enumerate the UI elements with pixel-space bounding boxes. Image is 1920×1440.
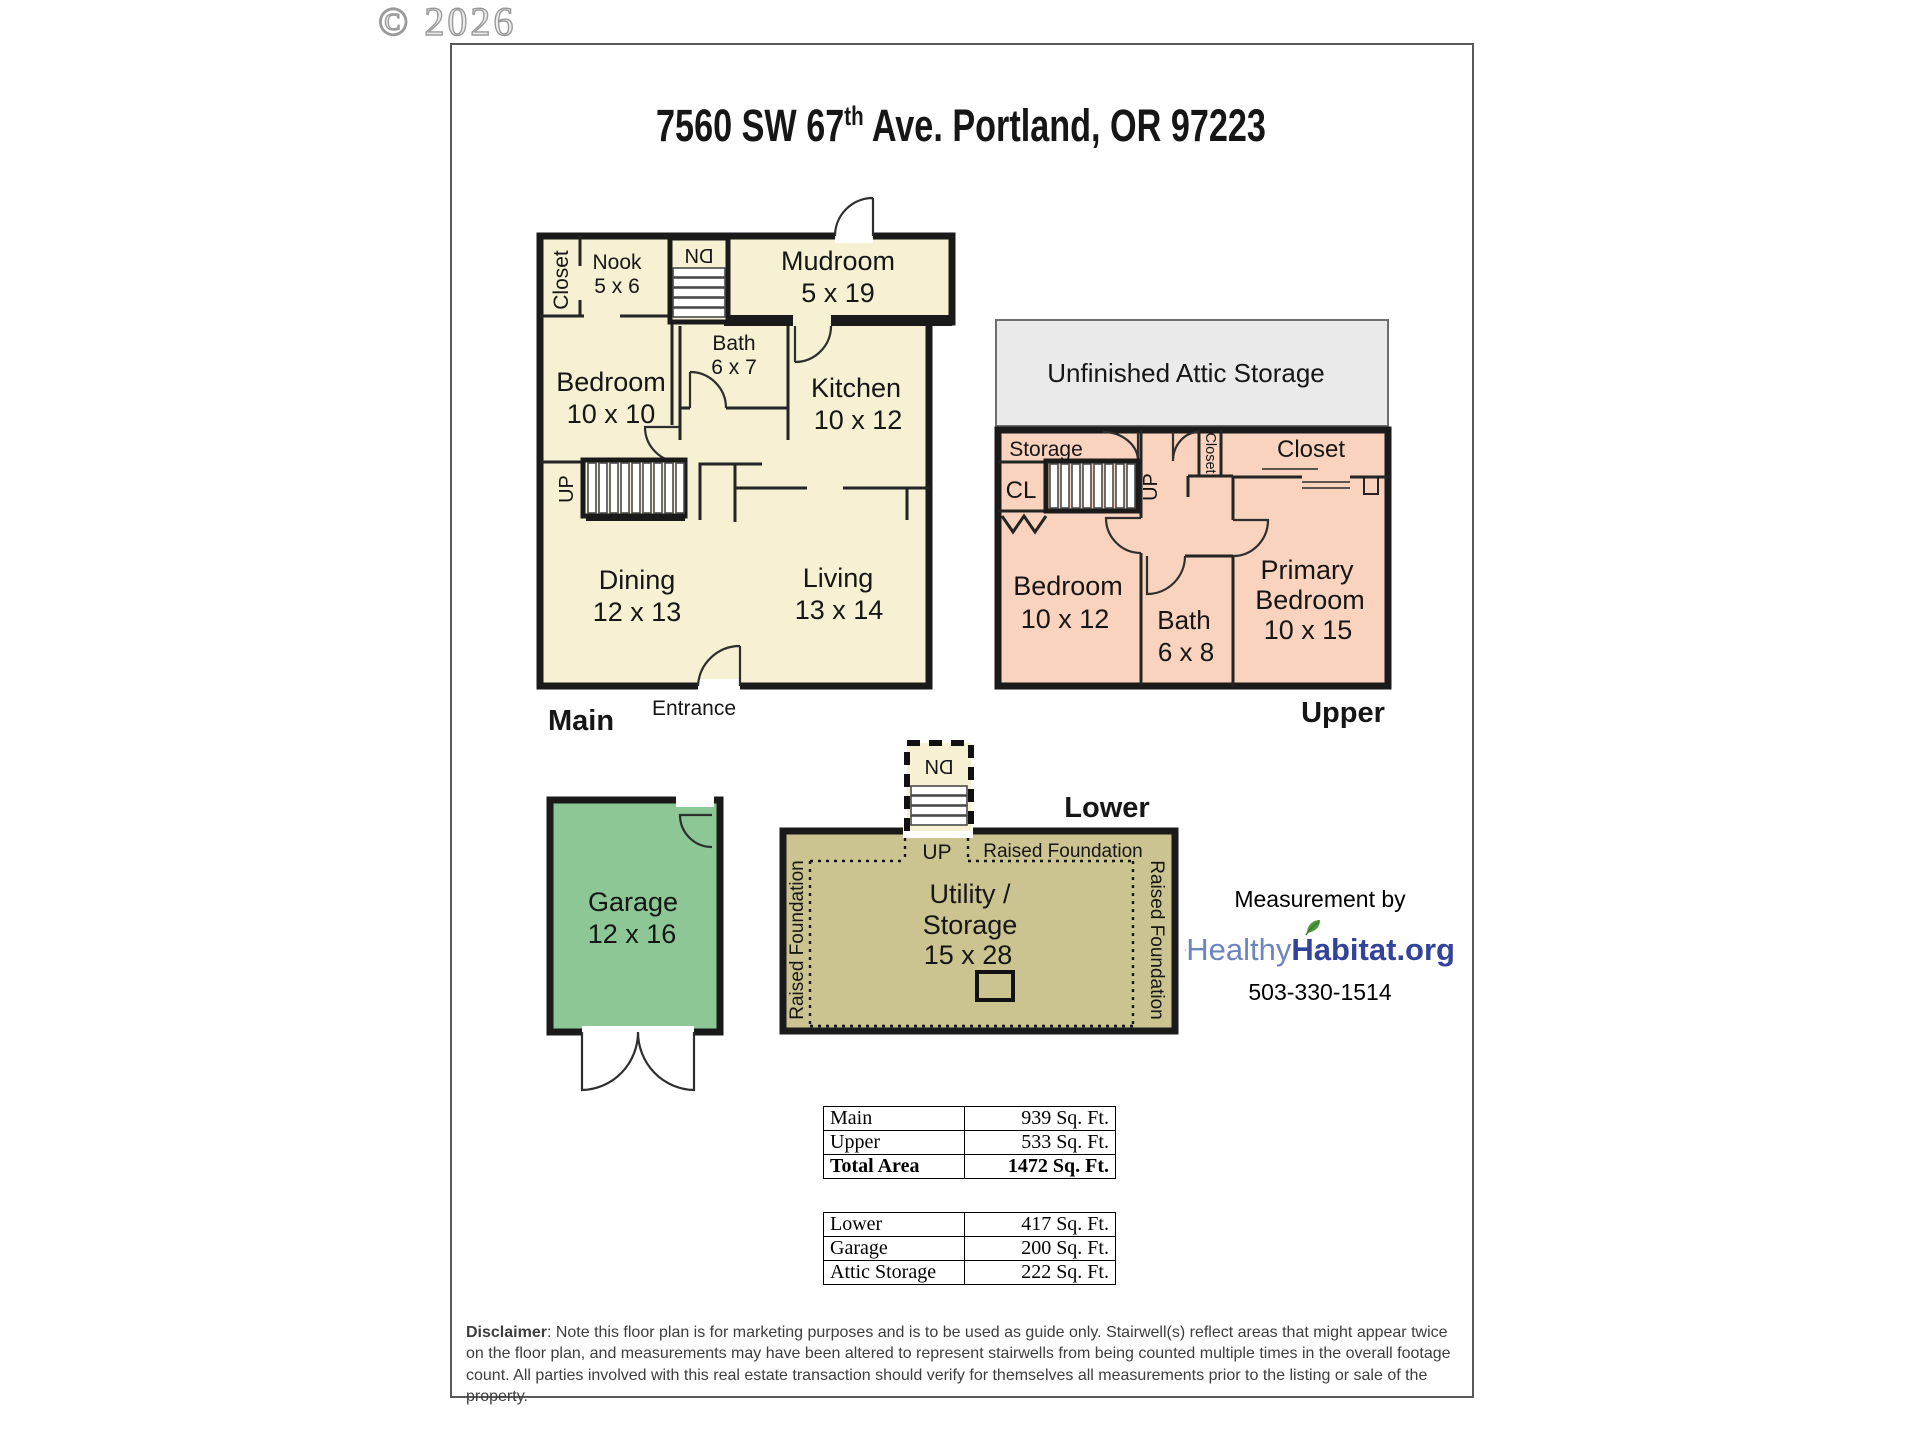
room-label-nook: Nook <box>592 251 642 274</box>
stair-label-main-up: UP <box>556 475 578 503</box>
logo-tld: .org <box>1396 932 1455 967</box>
room-dims-garage: 12 x 16 <box>588 919 677 949</box>
area-row-label: Lower <box>824 1213 965 1237</box>
mudroom-bottom-wall <box>724 315 952 326</box>
table-row: Lower 417 Sq. Ft. <box>824 1213 1116 1237</box>
stair-label-main-dn: DN <box>685 244 714 266</box>
logo-text: HealthyHabitat.org <box>1186 932 1455 968</box>
room-label-utility-line1: Utility / <box>930 879 1011 909</box>
kitchen-door-opening <box>793 313 831 328</box>
attic-storage-label: Unfinished Attic Storage <box>1047 358 1325 388</box>
room-label-cl: CL <box>1006 477 1037 504</box>
area-row-value: 939 Sq. Ft. <box>965 1107 1116 1131</box>
room-label-garage: Garage <box>588 887 678 917</box>
room-label-living: Living <box>803 563 874 593</box>
main-top-door-opening <box>835 229 873 243</box>
room-label-upper-bedroom: Bedroom <box>1013 571 1123 601</box>
upper-floor-plan: Unfinished Attic Storage Storage CL UP <box>996 320 1390 729</box>
room-label-dining: Dining <box>599 565 676 595</box>
stair-label-upper-up: UP <box>1140 473 1162 501</box>
disclaimer: Disclaimer: Note this floor plan is for … <box>466 1322 1468 1407</box>
room-dims-living: 13 x 14 <box>795 595 884 625</box>
upper-up-staircase <box>1046 461 1138 511</box>
floor-label-main: Main <box>548 705 614 737</box>
room-label-upper-closet: Closet <box>1277 436 1345 463</box>
room-dims-upper-bath: 6 x 8 <box>1158 637 1214 667</box>
room-label-main-bedroom: Bedroom <box>556 367 666 397</box>
room-dims-primary: 10 x 15 <box>1264 615 1353 645</box>
area-row-value: 222 Sq. Ft. <box>965 1261 1116 1285</box>
room-label-primary-line2: Bedroom <box>1255 585 1365 615</box>
floor-label-upper: Upper <box>1301 697 1385 729</box>
area-row-label: Attic Storage <box>824 1261 965 1285</box>
room-dims-dining: 12 x 13 <box>593 597 682 627</box>
table-row: Garage 200 Sq. Ft. <box>824 1237 1116 1261</box>
table-row-total: Total Area 1472 Sq. Ft. <box>824 1155 1116 1179</box>
room-dims-kitchen: 10 x 12 <box>814 405 903 435</box>
stair-label-lower-up: UP <box>922 841 951 864</box>
raised-foundation-label-left: Raised Foundation <box>787 860 808 1020</box>
table-row: Upper 533 Sq. Ft. <box>824 1131 1116 1155</box>
area-row-value: 417 Sq. Ft. <box>965 1213 1116 1237</box>
lower-floor-plan: DN Lower UP Raised Foundation Raised Fou… <box>783 743 1175 1031</box>
lower-dn-staircase <box>911 786 967 825</box>
area-summary-table: Main 939 Sq. Ft. Upper 533 Sq. Ft. Total… <box>823 1106 1116 1179</box>
room-label-utility-line2: Storage <box>923 910 1018 940</box>
entrance-label: Entrance <box>652 697 736 720</box>
leaf-icon <box>1303 917 1323 937</box>
healthyhabitat-logo: HealthyHabitat.org <box>1185 929 1455 971</box>
logo-habitat: Habitat <box>1291 932 1396 967</box>
table-row: Attic Storage 222 Sq. Ft. <box>824 1261 1116 1285</box>
room-label-main-closet: Closet <box>550 250 573 310</box>
area-row-label: Upper <box>824 1131 965 1155</box>
raised-foundation-label-top: Raised Foundation <box>983 841 1143 862</box>
room-label-mudroom: Mudroom <box>781 246 895 276</box>
floor-plan-page: © 2026 7560 SW 67th Ave. Portland, OR 97… <box>0 0 1920 1440</box>
room-label-upper-bath: Bath <box>1157 605 1211 635</box>
room-label-hall-closet: Closet <box>1202 432 1218 473</box>
room-dims-main-bedroom: 10 x 10 <box>567 399 656 429</box>
area-row-value: 1472 Sq. Ft. <box>965 1155 1116 1179</box>
main-up-staircase <box>583 460 685 521</box>
extra-areas-table: Lower 417 Sq. Ft. Garage 200 Sq. Ft. Att… <box>823 1212 1116 1285</box>
area-row-label: Main <box>824 1107 965 1131</box>
floor-label-lower: Lower <box>1064 792 1149 824</box>
room-dims-main-bath: 6 x 7 <box>711 356 757 379</box>
main-floor-plan: Closet Nook 5 x 6 DN Mudroom 5 x 19 Bath… <box>540 198 952 737</box>
room-label-primary-line1: Primary <box>1261 555 1354 585</box>
stair-label-lower-dn: DN <box>925 755 954 777</box>
room-dims-utility: 15 x 28 <box>924 940 1013 970</box>
area-row-label: Garage <box>824 1237 965 1261</box>
area-row-label: Total Area <box>824 1155 965 1179</box>
measurement-block: Measurement by HealthyHabitat.org 503-33… <box>1185 886 1455 1006</box>
garage-plan: Garage 12 x 16 <box>550 793 720 1090</box>
measurement-phone: 503-330-1514 <box>1185 979 1455 1006</box>
raised-foundation-label-right: Raised Foundation <box>1146 860 1167 1020</box>
logo-healthy: Healthy <box>1186 932 1291 967</box>
room-dims-nook: 5 x 6 <box>594 275 640 298</box>
area-row-value: 200 Sq. Ft. <box>965 1237 1116 1261</box>
garage-side-door-opening <box>676 793 714 807</box>
table-row: Main 939 Sq. Ft. <box>824 1107 1116 1131</box>
room-dims-upper-bedroom: 10 x 12 <box>1021 604 1110 634</box>
room-label-kitchen: Kitchen <box>811 373 901 403</box>
disclaimer-label: Disclaimer <box>466 1324 547 1341</box>
room-label-upper-storage: Storage <box>1009 438 1083 461</box>
measurement-caption: Measurement by <box>1185 886 1455 913</box>
room-label-main-bath: Bath <box>712 332 755 355</box>
disclaimer-body: : Note this floor plan is for marketing … <box>466 1324 1451 1405</box>
room-dims-mudroom: 5 x 19 <box>801 278 875 308</box>
main-entrance-opening <box>698 679 740 693</box>
area-row-value: 533 Sq. Ft. <box>965 1131 1116 1155</box>
